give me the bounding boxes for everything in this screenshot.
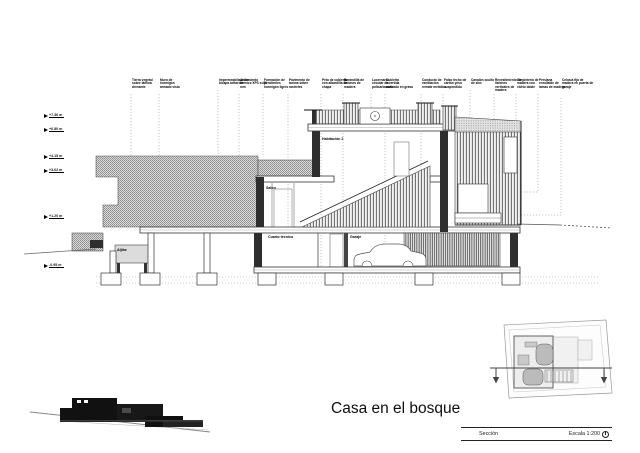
level-value: +6.80 m [49, 127, 64, 132]
basement-garage [254, 233, 520, 273]
page-title: Casa en el bosque [331, 400, 460, 418]
construction-note: Cubierta invertida acabado en grava [386, 79, 413, 89]
room-label-garage: Garaje [350, 235, 361, 239]
level-triangle-icon [44, 128, 48, 132]
level-value: -0.95 m [49, 263, 64, 268]
construction-note: Formación de pendientes hormigón ligero [264, 79, 291, 89]
site-plan-key [490, 320, 612, 398]
level-marker: +3.62 m [44, 168, 64, 173]
level-marker: +7.36 m [44, 113, 64, 118]
room-label-tank: Aljibe [117, 248, 127, 252]
title-block: Sección Escala 1:200 [461, 427, 612, 441]
level-triangle-icon [44, 215, 48, 219]
scale-label: Escala 1:200 [569, 431, 600, 437]
construction-note: Muro de hormigón armado visto [160, 79, 187, 89]
drawing-sheet: Habitación 2 Salón Cuarto técnico Garaje… [0, 0, 640, 453]
level-marker: -0.95 m [44, 263, 64, 268]
level-marker: +6.80 m [44, 127, 64, 132]
elevation-silhouette [30, 398, 210, 432]
level-marker: +1.20 m [44, 214, 64, 219]
section-drawing: Habitación 2 Salón Cuarto técnico Garaje… [0, 0, 640, 453]
level-triangle-icon [44, 114, 48, 118]
room-label-living: Salón [266, 186, 276, 190]
construction-note: Celosía fija de madera en puerta de gara… [562, 79, 594, 89]
construction-note: Pavimento de tarima sobre rastreles [289, 79, 316, 89]
room-label-bedroom: Habitación 2 [322, 137, 343, 141]
construction-note: Barandilla de listones de madera [344, 79, 371, 89]
garage-door [330, 234, 343, 267]
level-triangle-icon [44, 169, 48, 173]
right-wing [455, 117, 521, 225]
construction-note: Falso techo de cartón yeso suspendido [444, 79, 471, 89]
window [458, 184, 488, 213]
construction-note: Tierra vegetal sobre lámina drenante [132, 79, 159, 89]
section-cut-arrow [493, 368, 499, 384]
section-label: Sección [479, 431, 498, 437]
window [504, 137, 517, 173]
level-triangle-icon [44, 155, 48, 159]
level-value: +7.36 m [49, 113, 64, 118]
chimney [418, 103, 432, 124]
construction-note: Canalón oculto de zinc [471, 79, 498, 86]
level-triangle-icon [44, 264, 48, 268]
foundations [96, 273, 600, 285]
room-label-utility: Cuarto técnico [268, 235, 294, 239]
level-marker: +4.15 m [44, 154, 64, 159]
level-value: +4.15 m [49, 154, 64, 159]
level-value: +3.62 m [49, 168, 64, 173]
chimney [344, 103, 358, 124]
level-value: +1.20 m [49, 214, 64, 219]
skylight-dome [371, 112, 380, 121]
construction-note: Aislamiento térmico XPS e=80 mm [240, 79, 267, 89]
north-icon [602, 431, 609, 438]
